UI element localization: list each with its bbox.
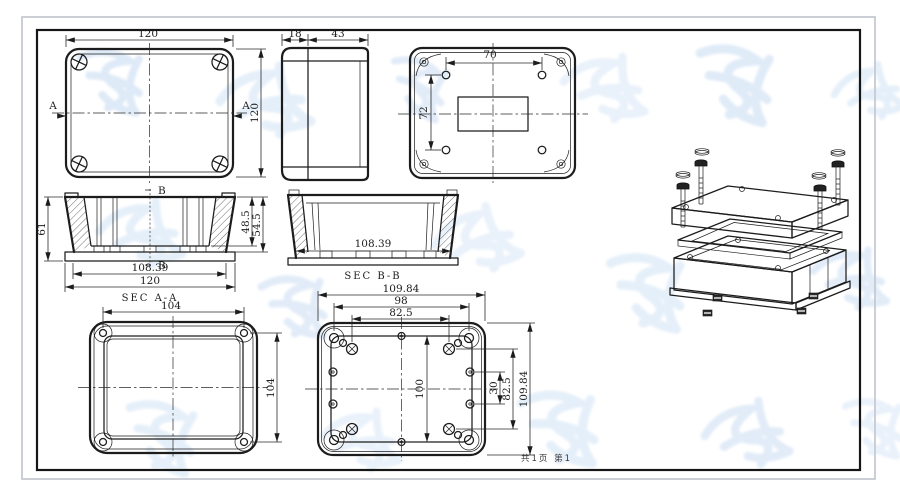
- base-nut: [713, 295, 722, 301]
- corner-screw: [209, 153, 230, 174]
- dim-hole-spacing-y: 72: [418, 106, 430, 119]
- view-cover-front: A A 120 120: [48, 28, 266, 183]
- dim-outer-depth: 54.5: [251, 213, 263, 236]
- dim-overall-height: 109.84: [518, 370, 530, 407]
- dim-cover-width: 120: [138, 28, 158, 40]
- dim-lid-thickness: 18: [288, 28, 301, 40]
- corner-screw: [209, 51, 230, 72]
- page-info: 共1页 第1: [521, 453, 572, 464]
- cover-screw: [814, 185, 826, 229]
- mounting-hole: [538, 146, 546, 154]
- seal-washer: [695, 149, 709, 155]
- dim-inner-width: 108.39: [355, 238, 392, 250]
- box-body-part: [670, 236, 850, 310]
- dim-center-spacing: 100: [414, 379, 426, 399]
- dim-boss-height: 82.5: [501, 377, 513, 400]
- base-nut: [797, 308, 806, 314]
- dim-side-hole-spacing: 30: [488, 381, 500, 394]
- dim-boss-width: 82.5: [389, 307, 412, 319]
- dim-hole-spacing-x: 70: [483, 49, 496, 61]
- dim-total-height: 61: [36, 222, 48, 235]
- engineering-drawing: A A 120 120 18 43: [0, 0, 900, 500]
- seal-washer: [812, 173, 826, 179]
- dim-cover-height: 120: [249, 103, 261, 123]
- dim-cover-inside-width: 104: [161, 300, 181, 312]
- base-nut: [809, 293, 818, 299]
- seal-washer: [831, 150, 845, 156]
- dim-hole-width: 98: [394, 295, 407, 307]
- view-exploded-assembly: [670, 149, 850, 316]
- section-mark-b-top: B: [158, 185, 166, 197]
- view-base-inside: 100 82.5 98 109.84 30 82.5 109.84: [305, 283, 535, 461]
- mounting-hole: [538, 71, 546, 79]
- cover-screw: [695, 160, 707, 204]
- dim-cover-inside-height: 104: [265, 378, 277, 398]
- base-nut: [703, 310, 712, 316]
- dim-body-depth: 43: [331, 28, 344, 40]
- drawing-sheet: A A 120 120 18 43: [0, 0, 900, 500]
- dim-outer-width: 120: [140, 275, 160, 287]
- view-section-bb: 108.39 SEC B-B: [288, 190, 458, 282]
- section-mark-a-left: A: [48, 100, 57, 112]
- mounting-hole: [442, 146, 450, 154]
- dim-inner-width: 108.39: [132, 262, 169, 274]
- section-bb-label: SEC B-B: [344, 271, 401, 282]
- corner-screw: [68, 153, 89, 174]
- seal-washer: [676, 172, 690, 178]
- dim-overall-width: 109.84: [383, 283, 420, 295]
